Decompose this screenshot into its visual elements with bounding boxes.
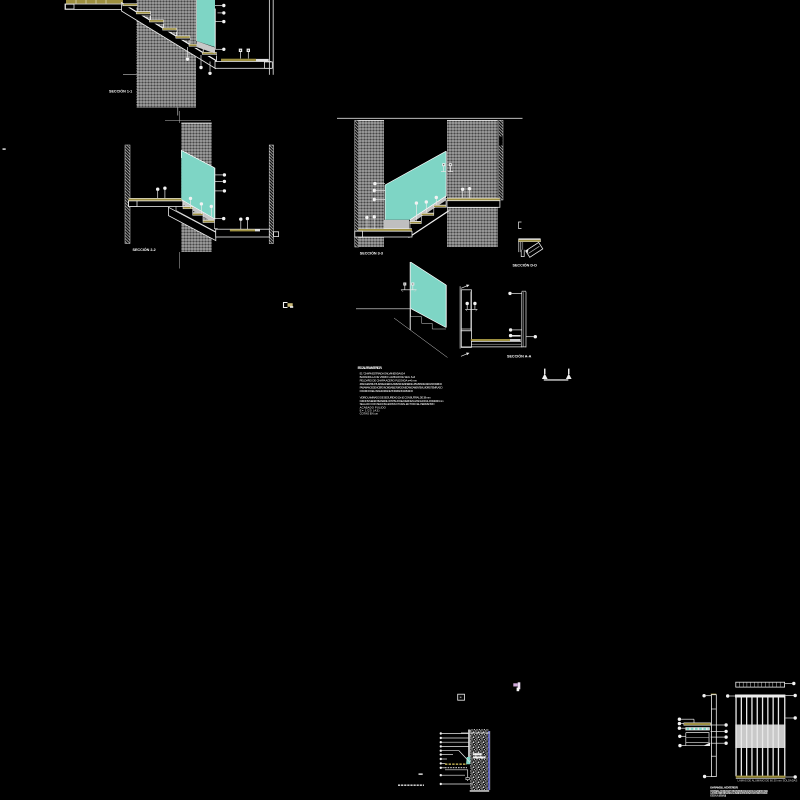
- svg-text:ZANCA-ESTRUCTURA DE ACERO LAMI: ZANCA-ESTRUCTURA DE ACERO LAMINADO EN PE…: [360, 382, 443, 386]
- svg-text:ESCALA 1/10 (A3): ESCALA 1/10 (A3): [710, 794, 726, 797]
- svg-text:COTAS EN cm: COTAS EN cm: [360, 411, 379, 415]
- svg-text:SELLADO CON SILICONA ESTRUCTUR: SELLADO CON SILICONA ESTRUCTURAL EN TODO…: [360, 402, 435, 406]
- svg-text:E1 “CHAPA ESTRIADA GALVANIZADA: E1 “CHAPA ESTRIADA GALVANIZADA 60.4: [360, 371, 406, 375]
- svg-text:LAMAS DE ALUMINIO DE 60.30 mm: LAMAS DE ALUMINIO DE 60.30 mm SOLDADAS: [738, 779, 798, 783]
- svg-text:SECCIÓN A-A: SECCIÓN A-A: [507, 354, 532, 359]
- svg-text:BARANDILLA DE VIDRIO LAMINAR D: BARANDILLA DE VIDRIO LAMINAR DE SEG. 6+6: [360, 375, 416, 379]
- svg-text:VIDRIO LAMINADO DE SEGURIDAD 1: VIDRIO LAMINADO DE SEGURIDAD 10+10 CON B…: [360, 395, 432, 399]
- svg-text:SECCIÓN D-D: SECCIÓN D-D: [513, 263, 538, 268]
- svg-text:PASAMANOS DE ACERO INOXIDABLE: PASAMANOS DE ACERO INOXIDABLE FIJADO MEC…: [360, 386, 443, 390]
- svg-text:SECCIÓN 3-3: SECCIÓN 3-3: [360, 251, 383, 256]
- svg-text:SECCIÓN 2-2: SECCIÓN 2-2: [133, 247, 156, 252]
- svg-text:SECCIÓN 1-1: SECCIÓN 1-1: [109, 89, 132, 94]
- svg-text:FORJADO DE LOSA MACIZA DE HORM: FORJADO DE LOSA MACIZA DE HORMIGON ARMAD…: [360, 389, 414, 393]
- svg-text:ESCALERA INTERIOR.: ESCALERA INTERIOR.: [358, 366, 383, 370]
- svg-text:BARANDILLA EXTERIOR.: BARANDILLA EXTERIOR.: [710, 786, 738, 790]
